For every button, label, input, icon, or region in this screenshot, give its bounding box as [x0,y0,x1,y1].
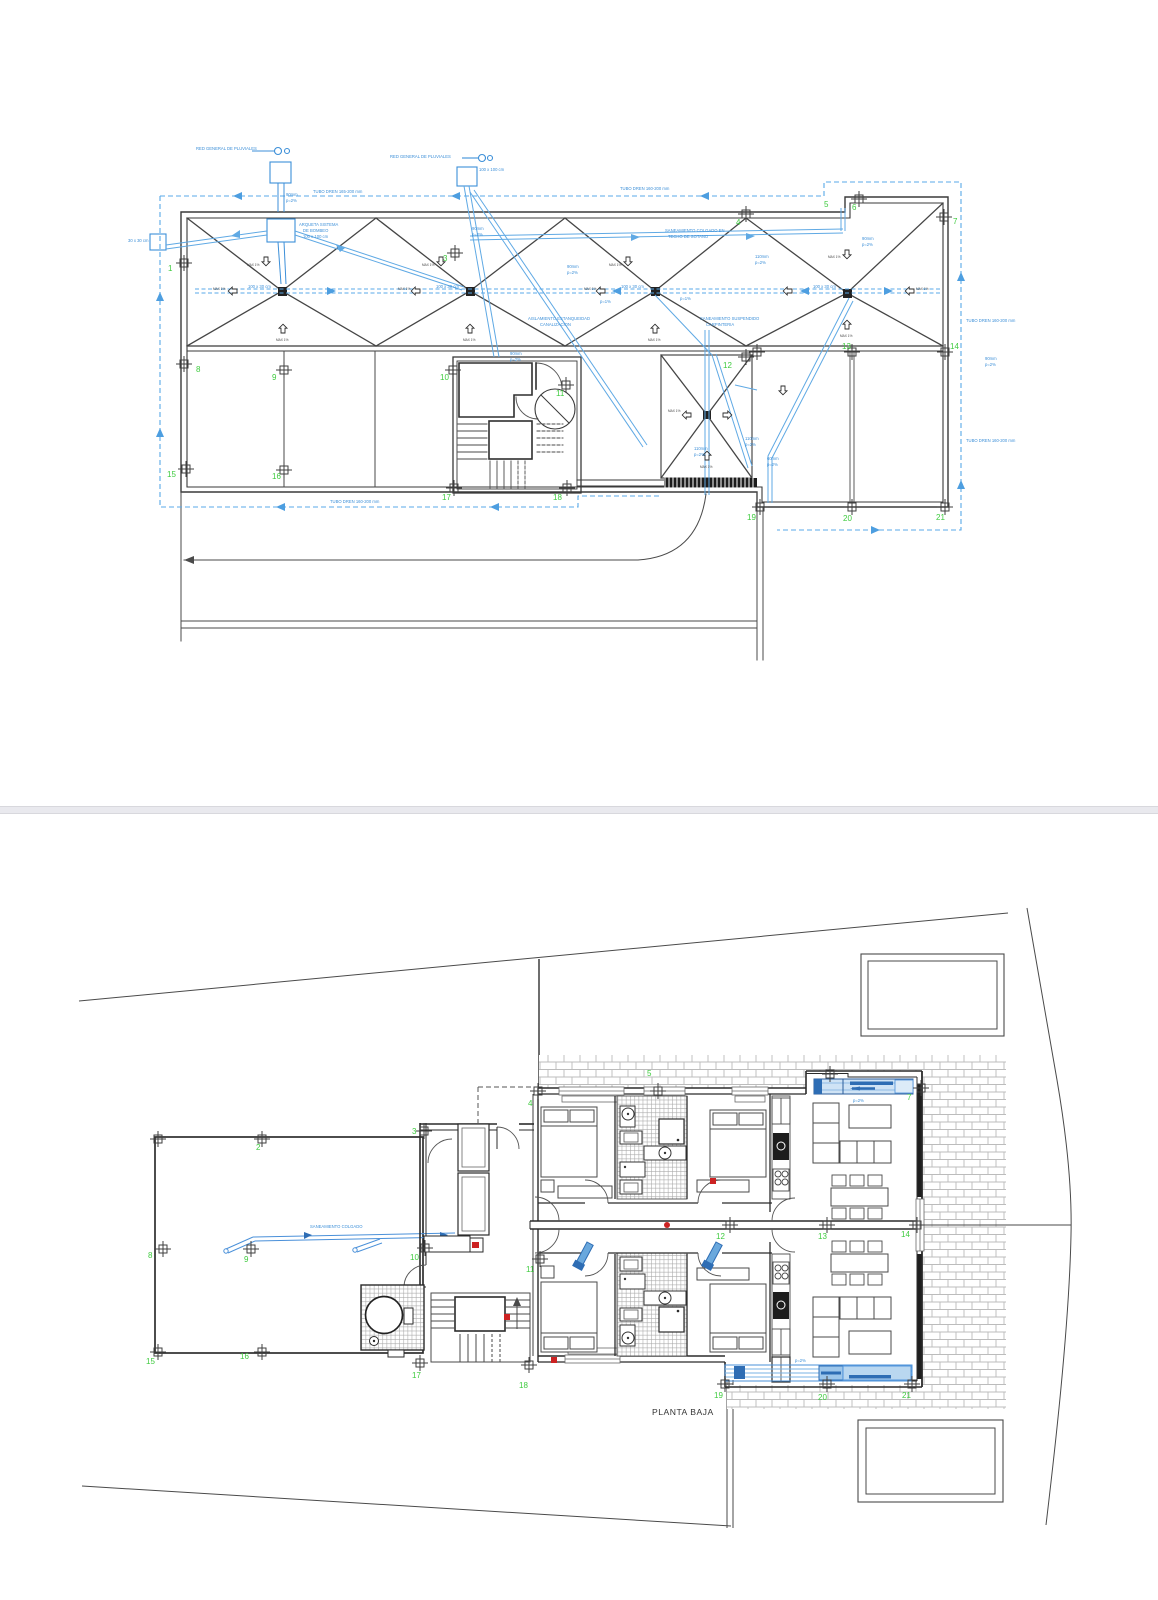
svg-text:PLANTA BAJA: PLANTA BAJA [652,1407,714,1417]
svg-text:TUBO DREN 160-200 mm: TUBO DREN 160-200 mm [966,318,1016,323]
svg-text:SANEAMIENTO COLGADO: SANEAMIENTO COLGADO [310,1224,363,1229]
svg-text:MAX 1%: MAX 1% [276,338,289,342]
svg-text:1: 1 [168,264,173,273]
svg-text:100 x 30 cm: 100 x 30 cm [813,284,836,289]
svg-text:90mm: 90mm [286,192,298,197]
svg-text:7: 7 [953,217,958,226]
svg-text:AISLAMIENTO ESTANQUEIDAD: AISLAMIENTO ESTANQUEIDAD [528,316,590,321]
svg-text:15: 15 [146,1357,155,1366]
svg-text:RED GENERAL DE PLUVIALES: RED GENERAL DE PLUVIALES [196,146,257,151]
svg-text:14: 14 [950,342,959,351]
svg-text:ARQUETA SISTEMA: ARQUETA SISTEMA [299,222,338,227]
svg-text:13: 13 [818,1232,827,1241]
svg-text:8: 8 [196,365,201,374]
svg-text:MAX 1%: MAX 1% [700,465,713,469]
svg-text:110mm: 110mm [745,436,759,441]
svg-text:MAX 1%: MAX 1% [463,338,476,342]
svg-text:17: 17 [442,493,451,502]
svg-text:17: 17 [412,1371,421,1380]
svg-text:19: 19 [747,513,756,522]
svg-text:MAX 1%: MAX 1% [916,287,929,291]
svg-text:p=1%: p=1% [600,299,611,304]
svg-text:10: 10 [410,1253,419,1262]
svg-text:MAX 1%: MAX 1% [648,338,661,342]
svg-text:14: 14 [901,1230,910,1239]
svg-text:9: 9 [272,373,277,382]
svg-text:p=2%: p=2% [286,198,297,203]
svg-text:11: 11 [526,1265,535,1274]
svg-text:p=2%: p=2% [862,242,873,247]
svg-text:SANEAMIENTO SUSPENDIDO: SANEAMIENTO SUSPENDIDO [700,316,760,321]
svg-text:90mm: 90mm [472,226,484,231]
svg-text:MAX 1%: MAX 1% [609,263,622,267]
svg-text:19: 19 [714,1391,723,1400]
svg-text:100 x 30 cm: 100 x 30 cm [248,284,271,289]
svg-text:TUBO DREN 160-200 mm: TUBO DREN 160-200 mm [966,438,1016,443]
svg-text:p=2%: p=2% [510,357,521,362]
svg-text:p=2%: p=2% [795,1358,806,1363]
svg-text:110mm: 110mm [755,254,769,259]
svg-text:100 x 30 cm: 100 x 30 cm [621,284,644,289]
svg-text:100 x 100 cm: 100 x 100 cm [303,234,329,239]
svg-text:p=2%: p=2% [853,1098,864,1103]
svg-text:p=2%: p=2% [472,232,483,237]
svg-text:TUBO DREN 165-200 mm: TUBO DREN 165-200 mm [313,189,363,194]
svg-text:2: 2 [256,1143,261,1152]
svg-text:16: 16 [272,472,281,481]
svg-text:60mm: 60mm [767,456,779,461]
svg-text:p=1%: p=1% [680,296,691,301]
svg-text:MAX 1%: MAX 1% [247,263,260,267]
svg-text:MAX 1%: MAX 1% [668,409,681,413]
svg-text:TECHO DE SOTANO: TECHO DE SOTANO [668,234,709,239]
svg-text:TUBO DREN 160-200 mm: TUBO DREN 160-200 mm [330,499,380,504]
svg-text:MAX 1%: MAX 1% [840,334,853,338]
svg-text:5: 5 [824,200,829,209]
svg-text:90mm: 90mm [510,351,522,356]
svg-text:20: 20 [818,1393,827,1402]
svg-text:4: 4 [528,1099,533,1108]
svg-text:90mm: 90mm [567,264,579,269]
svg-text:20: 20 [843,514,852,523]
svg-text:5: 5 [647,1069,652,1078]
svg-text:90mm: 90mm [985,356,997,361]
svg-text:4: 4 [736,218,741,227]
svg-text:7: 7 [907,1093,912,1102]
svg-text:12: 12 [723,361,732,370]
svg-text:p=2%: p=2% [767,462,778,467]
svg-text:8: 8 [148,1251,153,1260]
svg-text:CANALIZACION: CANALIZACION [540,322,571,327]
svg-text:30 x 30 cm: 30 x 30 cm [128,238,149,243]
svg-text:15: 15 [167,470,176,479]
svg-text:CARPINTERIA: CARPINTERIA [706,322,734,327]
svg-text:MAX 1%: MAX 1% [213,287,226,291]
svg-text:12: 12 [716,1232,725,1241]
svg-text:9: 9 [244,1255,249,1264]
svg-text:110mm: 110mm [694,446,708,451]
svg-text:MAX 1%: MAX 1% [584,287,597,291]
svg-text:18: 18 [519,1381,528,1390]
svg-text:MAX 1%: MAX 1% [398,287,411,291]
svg-text:SANEAMIENTO COLGADO EN: SANEAMIENTO COLGADO EN [665,228,725,233]
svg-text:18: 18 [553,493,562,502]
svg-text:p=2%: p=2% [985,362,996,367]
svg-text:21: 21 [936,513,945,522]
svg-text:13: 13 [842,342,851,351]
svg-text:p=2%: p=2% [745,442,756,447]
svg-text:p=2%: p=2% [755,260,766,265]
svg-text:100 x 30 cm: 100 x 30 cm [436,284,459,289]
svg-text:p=2%: p=2% [567,270,578,275]
svg-text:11: 11 [556,389,565,398]
svg-text:RED GENERAL DE PLUVIALES: RED GENERAL DE PLUVIALES [390,154,451,159]
svg-text:90mm: 90mm [862,236,874,241]
svg-text:TUBO DREN 160-200 mm: TUBO DREN 160-200 mm [620,186,670,191]
svg-text:6: 6 [852,203,857,212]
svg-text:MAX 1%: MAX 1% [828,255,841,259]
svg-text:10: 10 [440,373,449,382]
svg-text:MAX 1%: MAX 1% [422,263,435,267]
svg-text:DE BOMBEO: DE BOMBEO [303,228,329,233]
svg-text:16: 16 [240,1352,249,1361]
svg-text:3: 3 [412,1127,417,1136]
svg-text:p=2%: p=2% [694,452,705,457]
svg-text:100 x 100 cm: 100 x 100 cm [479,167,505,172]
svg-text:21: 21 [902,1391,911,1400]
